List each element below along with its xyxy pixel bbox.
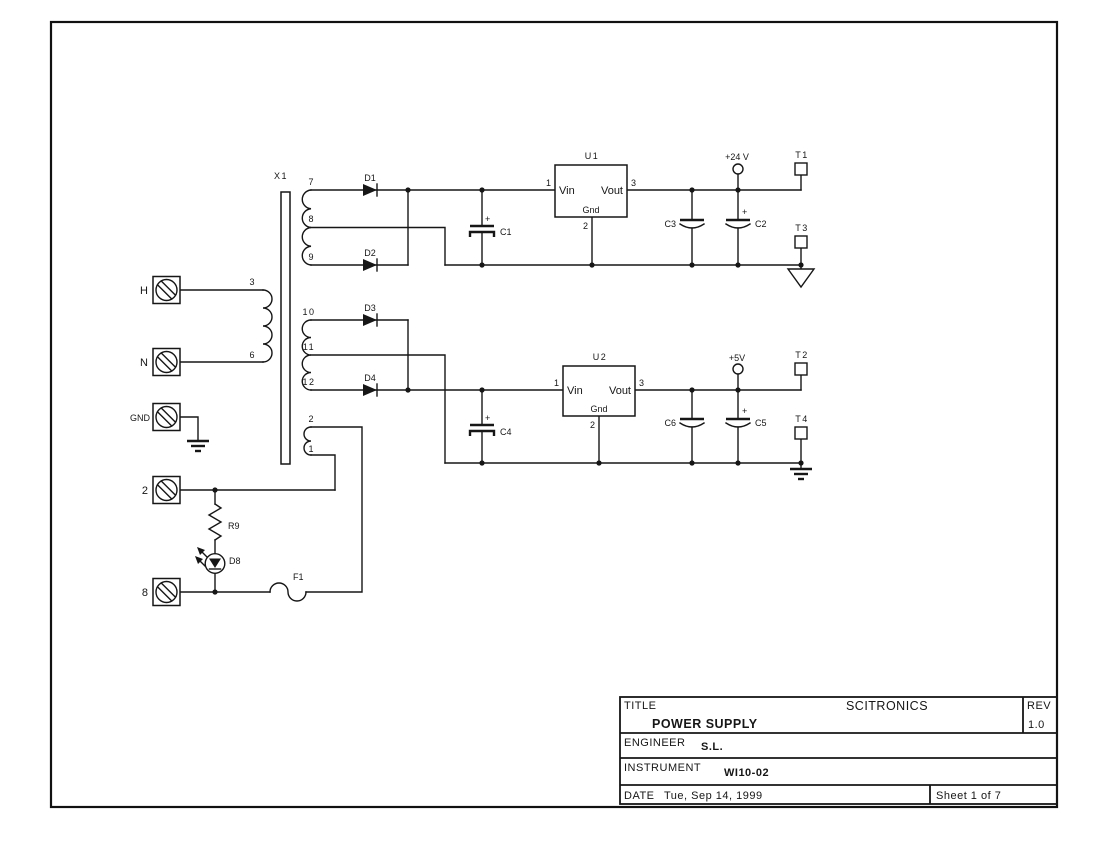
cap-c6-label: C6 [664, 418, 676, 428]
cap-c2-plus: + [742, 207, 747, 217]
terminal-gnd-label: GND [130, 413, 151, 423]
testpoint-t4-label: T4 [795, 414, 809, 424]
sec2-pin10-label: 10 [302, 307, 315, 317]
testpoint-t2-label: T2 [795, 350, 809, 360]
u1-vin-label: Vin [559, 185, 575, 197]
sec1-pin8-label: 8 [308, 214, 313, 224]
title-label: TITLE [624, 700, 656, 712]
testpoint-t3: T3 [795, 223, 809, 248]
resistor-r9-label: R9 [228, 521, 240, 531]
cap-c4-label: C4 [500, 427, 512, 437]
diode-d1-label: D1 [364, 173, 376, 183]
diode-d3-label: D3 [364, 303, 376, 313]
rail-24v-label: +24 V [725, 152, 749, 162]
transformer-core [281, 192, 290, 464]
diode-d4-label: D4 [364, 373, 376, 383]
sheet-border [51, 22, 1057, 807]
sec2-pin11-label: 11 [303, 342, 315, 352]
schematic-sheet: X1 3 6 7 8 9 10 11 12 2 1 H N GND [0, 0, 1117, 842]
sec2-pin12-label: 12 [302, 377, 315, 387]
testpoint-t3-label: T3 [795, 223, 809, 233]
rail-5v-label: +5V [729, 353, 745, 363]
engineer-value: S.L. [701, 741, 723, 753]
instrument-label: INSTRUMENT [624, 762, 701, 774]
u2-pin3-label: 3 [639, 378, 644, 388]
testpoint-t1: T1 [795, 150, 809, 175]
u2-pin1-label: 1 [554, 378, 559, 388]
date-value: Tue, Sep 14, 1999 [664, 790, 763, 802]
fuse-f1-label: F1 [293, 572, 304, 582]
terminal-h-label: H [140, 285, 148, 297]
sec1-pin9-label: 9 [308, 252, 313, 262]
rev-label: REV [1027, 700, 1051, 712]
company-name: SCITRONICS [846, 699, 928, 713]
u1-pin2-label: 2 [583, 221, 588, 231]
u1-ref-label: U1 [585, 151, 600, 161]
testpoint-t1-label: T1 [795, 150, 809, 160]
rev-value: 1.0 [1028, 719, 1045, 731]
cap-c3-label: C3 [664, 219, 676, 229]
sec3-pin1-label: 1 [308, 444, 313, 454]
testpoint-t4: T4 [795, 414, 809, 439]
u2-gnd-label: Gnd [590, 404, 607, 414]
testpoint-t2: T2 [795, 350, 809, 375]
cap-c5-plus: + [742, 406, 747, 416]
terminal-8-label: 8 [142, 587, 148, 599]
primary-pin3-label: 3 [249, 277, 254, 287]
sheet-title: POWER SUPPLY [652, 717, 758, 731]
u1-pin3-label: 3 [631, 178, 636, 188]
instrument-value: WI10-02 [724, 767, 769, 779]
terminal-n-label: N [140, 357, 148, 369]
cap-c1-label: C1 [500, 227, 512, 237]
transformer-ref-label: X1 [274, 171, 288, 181]
u1-vout-label: Vout [601, 185, 623, 197]
terminal-2-label: 2 [142, 485, 148, 497]
led-d8-label: D8 [229, 556, 241, 566]
date-label: DATE [624, 790, 655, 802]
cap-c2-label: C2 [755, 219, 767, 229]
cap-c1-plus: + [485, 214, 490, 224]
sheet-number: Sheet 1 of 7 [936, 790, 1001, 802]
cap-c5-label: C5 [755, 418, 767, 428]
sec3-pin2-label: 2 [308, 414, 313, 424]
u2-pin2-label: 2 [590, 420, 595, 430]
u2-vin-label: Vin [567, 385, 583, 397]
u1-pin1-label: 1 [546, 178, 551, 188]
primary-pin6-label: 6 [249, 350, 254, 360]
u2-vout-label: Vout [609, 385, 631, 397]
sec1-pin7-label: 7 [308, 177, 313, 187]
cap-c4-plus: + [485, 413, 490, 423]
engineer-label: ENGINEER [624, 737, 685, 749]
u2-ref-label: U2 [593, 352, 608, 362]
schematic-canvas: X1 3 6 7 8 9 10 11 12 2 1 H N GND [0, 0, 1117, 842]
u1-gnd-label: Gnd [582, 205, 599, 215]
diode-d2-label: D2 [364, 248, 376, 258]
